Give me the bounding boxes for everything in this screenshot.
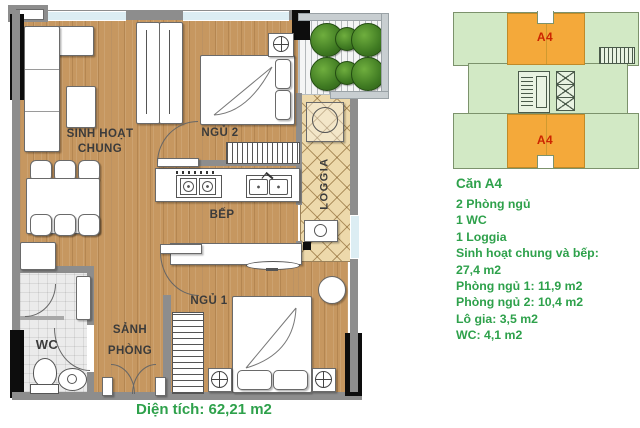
dining-chair: [78, 214, 100, 236]
plant-icon: [351, 57, 385, 91]
sink-basin: [269, 179, 288, 195]
room-label-bedroom1: NGỦ 1: [180, 294, 238, 309]
stove-controls: [176, 171, 218, 174]
area-note: Diện tích: 62,21 m2: [136, 401, 272, 418]
radiator: [226, 142, 300, 164]
window-right-loggia: [350, 215, 360, 259]
unit-info-line: 2 Phòng ngủ: [456, 196, 636, 212]
toilet-tank: [30, 384, 59, 394]
unit-info: Căn A4 2 Phòng ngủ 1 WC 1 Loggia Sinh ho…: [456, 176, 636, 344]
pillow: [275, 90, 291, 120]
room-label-loggia: LOGGIA: [318, 157, 333, 209]
balcony-rail-top: [298, 13, 388, 21]
room-label-living-line2: CHUNG: [78, 143, 122, 155]
core-stairs-icon: [518, 71, 550, 113]
unit-info-line: 1 Loggia: [456, 229, 636, 245]
pillow: [237, 370, 272, 390]
shelf-ladder: [172, 312, 204, 394]
stairs-icon: [599, 47, 635, 64]
room-label-hall: SẢNH PHÒNG: [99, 320, 161, 362]
unit-a4-top-notch: [537, 11, 554, 24]
room-label-hall-line1: SẢNH: [113, 324, 147, 336]
room-label-living: SINH HOẠT CHUNG: [40, 127, 160, 157]
wc-shower-panel: [76, 276, 91, 320]
balcony-rail-bottom: [330, 91, 389, 99]
unit-info-line: WC: 4,1 m2: [456, 327, 636, 343]
stove-burner-icon: [183, 181, 194, 192]
wardrobe-unit: [159, 22, 183, 124]
balcony-rail-right: [381, 13, 389, 99]
tv-stand-icon: [266, 268, 278, 271]
entry-door-post: [155, 377, 166, 396]
room-label-hall-line2: PHÒNG: [108, 345, 152, 357]
room-label-loggia-wrap: LOGGIA: [300, 143, 350, 223]
wardrobe-rod: [169, 30, 170, 114]
room-label-kitchen: BẾP: [196, 208, 248, 223]
dining-chair: [54, 214, 76, 236]
unit-info-line: Phòng ngủ 2: 10,4 m2: [456, 294, 636, 310]
core-stairs-steps: [521, 76, 533, 106]
unit-info-line: Sinh hoạt chung và bếp:: [456, 245, 636, 261]
unit-info-title: Căn A4: [456, 176, 636, 191]
wardrobe-rod: [146, 30, 147, 114]
unit-info-line: Phòng ngủ 1: 11,9 m2: [456, 278, 636, 294]
room-label-bedroom2: NGỦ 2: [185, 126, 255, 141]
window-top-bedroom2: [183, 11, 289, 21]
unit-a4-bottom-notch: [537, 155, 554, 168]
wardrobe-unit: [136, 22, 160, 124]
apartment-floor-plan-page: SINH HOẠT CHUNG NGỦ 2 BẾP NGỦ 1 SẢNH PHÒ…: [0, 0, 640, 428]
coffee-table: [66, 86, 96, 128]
cabinet-refrigerator: [20, 242, 56, 270]
plant-icon: [351, 23, 385, 57]
wash-basin-drain-icon: [67, 374, 77, 384]
loggia-duct: [303, 242, 311, 250]
unit-info-line: 27,4 m2: [456, 262, 636, 278]
unit-info-line: 1 WC: [456, 212, 636, 228]
elevator-icon: [556, 97, 575, 111]
washing-machine-drum-icon: [312, 107, 338, 133]
pillow: [273, 370, 308, 390]
stool: [318, 276, 346, 304]
room-label-wc: WC: [30, 337, 64, 352]
toilet-icon: [33, 358, 57, 387]
dining-chair: [30, 214, 52, 236]
room-label-living-line1: SINH HOẠT: [67, 128, 134, 140]
stove-burner-icon: [202, 181, 213, 192]
unit-info-line: Lô gia: 3,5 m2: [456, 311, 636, 327]
ac-fan-icon: [273, 36, 289, 52]
core-stairs-landing: [536, 76, 547, 108]
column-bottom-left: [10, 330, 24, 398]
lamp-icon: [211, 371, 228, 388]
unit-a4-bottom-label: A4: [507, 133, 583, 147]
lamp-icon: [315, 371, 332, 388]
loggia-sink-drain-icon: [314, 224, 327, 237]
unit-a4-top-label: A4: [507, 30, 583, 44]
window-top-living: [48, 11, 126, 21]
elevator-icon: [556, 71, 575, 85]
elevator-icon: [556, 84, 575, 98]
pillow: [275, 59, 291, 89]
